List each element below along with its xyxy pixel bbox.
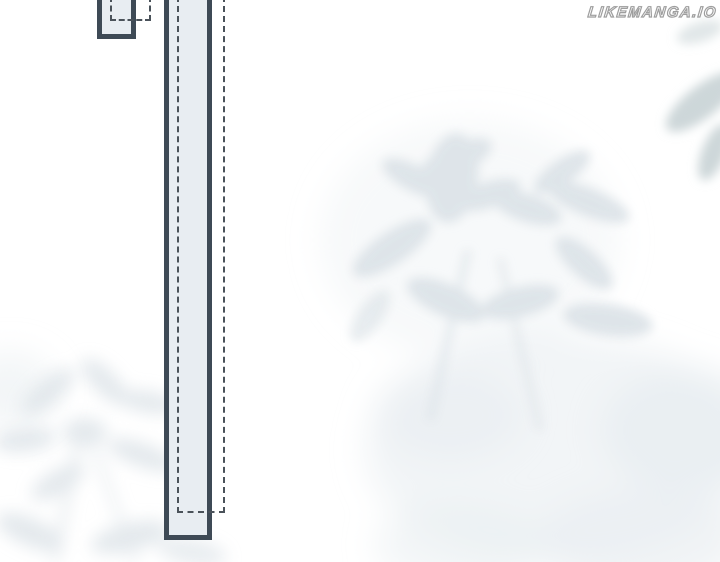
- leaf-shadow-overlay: [0, 0, 720, 562]
- manga-page: LIKEMANGA.IO: [0, 0, 720, 562]
- dashed-frame-tall: [177, 0, 225, 513]
- shadow-wash-bottom-right: [0, 120, 720, 562]
- dashed-frame-small: [110, 0, 151, 21]
- site-watermark: LIKEMANGA.IO: [587, 4, 718, 21]
- shadow-cluster-center: [343, 130, 655, 430]
- shadow-leaves-right-edge: [657, 15, 720, 184]
